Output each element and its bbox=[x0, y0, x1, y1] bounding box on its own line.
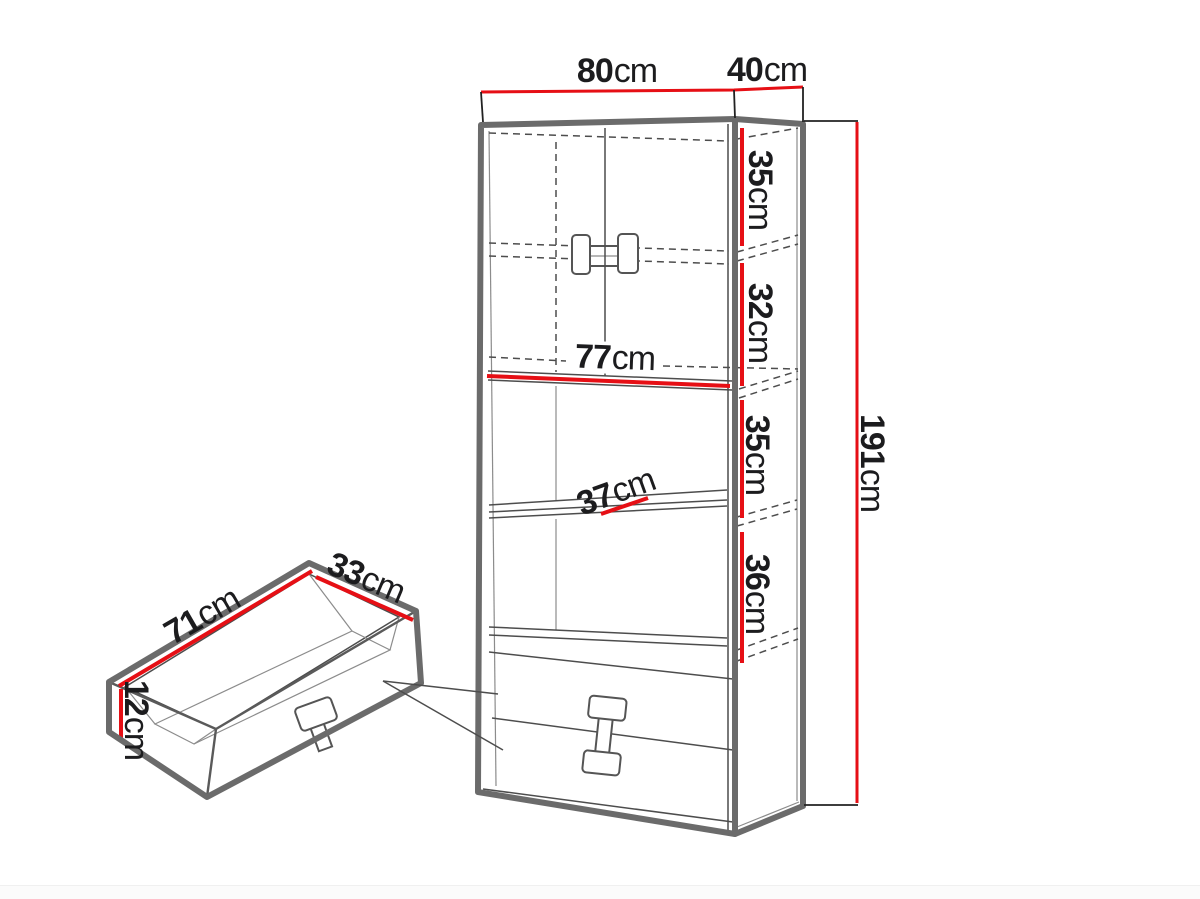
dim-unit: cm bbox=[611, 339, 656, 378]
furniture-diagram bbox=[0, 0, 1200, 899]
door-handle-right-plate bbox=[618, 234, 638, 273]
dim-label-section-1: 35cm bbox=[744, 150, 776, 230]
page-bottom-strip bbox=[0, 885, 1200, 899]
dim-label-top-depth: 40cm bbox=[727, 54, 807, 86]
dim-unit: cm bbox=[764, 51, 807, 89]
dim-label-shelf-width: 77cm bbox=[571, 340, 658, 375]
dim-label-drawer-height: 12cm bbox=[120, 680, 152, 760]
dim-value: 80 bbox=[577, 52, 613, 90]
dim-unit: cm bbox=[614, 52, 657, 90]
drawer-handle-top-plate bbox=[588, 695, 627, 721]
dim-label-top-width: 80cm bbox=[577, 55, 657, 87]
dim-unit: cm bbox=[741, 320, 779, 363]
dim-label-section-3: 35cm bbox=[741, 415, 773, 495]
dim-unit: cm bbox=[741, 187, 779, 230]
dim-value: 40 bbox=[727, 51, 763, 89]
dim-value: 191 bbox=[853, 414, 891, 468]
dim-value: 36 bbox=[738, 554, 776, 590]
door-handle-left-plate bbox=[572, 235, 590, 274]
dim-label-section-2: 32cm bbox=[744, 283, 776, 363]
dim-unit: cm bbox=[117, 717, 155, 760]
dim-value: 77 bbox=[574, 337, 611, 376]
top-dimension bbox=[481, 87, 803, 122]
dim-unit: cm bbox=[738, 591, 776, 634]
diagram-canvas: 80cm 40cm 191cm 35cm 32cm 35cm 36cm 77cm… bbox=[0, 0, 1200, 899]
dim-label-section-4: 36cm bbox=[741, 554, 773, 634]
dim-value: 32 bbox=[741, 283, 779, 319]
drawer-handle-bottom-plate bbox=[582, 750, 621, 776]
dim-value: 35 bbox=[741, 150, 779, 186]
dim-value: 35 bbox=[738, 415, 776, 451]
dim-value: 12 bbox=[117, 680, 155, 716]
dim-label-total-height: 191cm bbox=[856, 414, 888, 512]
dim-unit: cm bbox=[738, 452, 776, 495]
height-dimension bbox=[804, 121, 858, 805]
dim-unit: cm bbox=[853, 469, 891, 512]
